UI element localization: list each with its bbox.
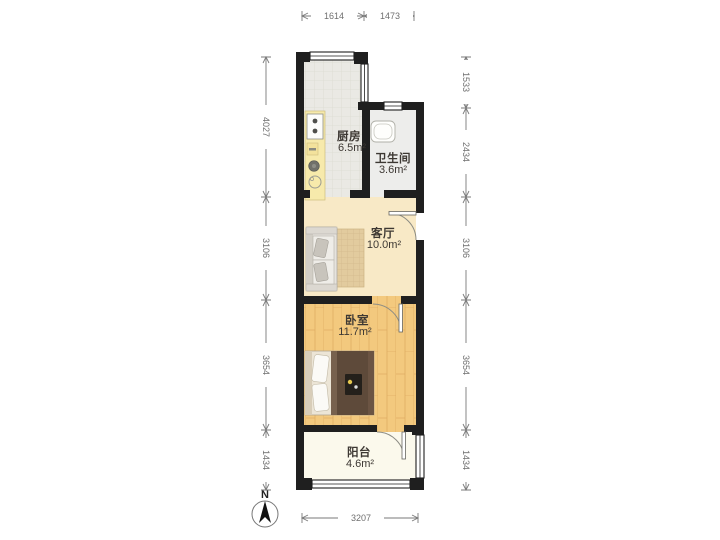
bathroom-top-window [384, 102, 402, 110]
bathroom-area: 3.6m² [363, 164, 423, 176]
balcony-area: 4.6m² [330, 458, 390, 470]
balcony-bottom-window [312, 480, 410, 488]
balcony-right-window [416, 435, 424, 478]
dim-top-1: 1614 [311, 10, 357, 22]
dim-right-1: 1533 [460, 60, 472, 104]
dim-right-4: 3654 [460, 343, 472, 387]
kitchen-counter [305, 111, 325, 200]
dim-left-3: 3654 [260, 343, 272, 387]
dim-right-2: 2434 [460, 130, 472, 174]
kitchen-top-window [310, 52, 354, 60]
compass-icon [252, 501, 278, 527]
bedroom-area: 11.7m² [325, 326, 385, 338]
dim-top-2: 1473 [367, 10, 413, 22]
dim-right-5: 1434 [460, 438, 472, 482]
bed-icon [305, 351, 374, 415]
compass-north-label: N [255, 489, 275, 501]
dim-left-1: 4027 [260, 105, 272, 149]
dim-left-4: 1434 [260, 438, 272, 482]
dim-bottom-1: 3207 [338, 512, 384, 524]
kitchen-right-window [361, 64, 368, 102]
dim-left-2: 3106 [260, 226, 272, 270]
living-room-area: 10.0m² [354, 239, 414, 251]
sofa-icon [306, 227, 337, 291]
floorplan-canvas: 厨房 6.5m² 卫生间 3.6m² 客厅 10.0m² 卧室 11.7m² 阳… [0, 0, 720, 540]
dim-right-3: 3106 [460, 226, 472, 270]
